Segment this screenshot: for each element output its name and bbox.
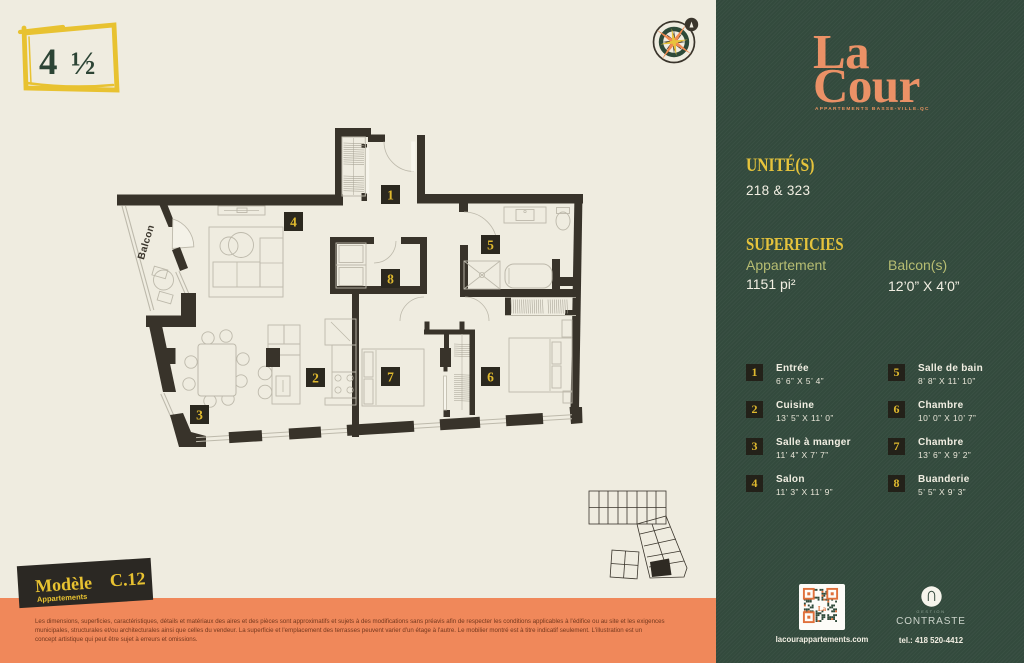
svg-text:2: 2: [312, 371, 319, 386]
svg-text:La: La: [818, 605, 827, 613]
svg-text:8: 8: [387, 272, 394, 287]
svg-text:Balcon: Balcon: [136, 224, 157, 261]
svg-text:6: 6: [487, 370, 494, 385]
svg-text:4 ½: 4 ½: [39, 42, 96, 83]
svg-text:1: 1: [387, 188, 394, 203]
svg-text:7: 7: [387, 370, 394, 385]
svg-text:3: 3: [196, 408, 203, 423]
svg-text:4: 4: [290, 215, 297, 230]
svg-text:5: 5: [487, 238, 494, 253]
svg-text:C.12: C.12: [109, 568, 146, 590]
